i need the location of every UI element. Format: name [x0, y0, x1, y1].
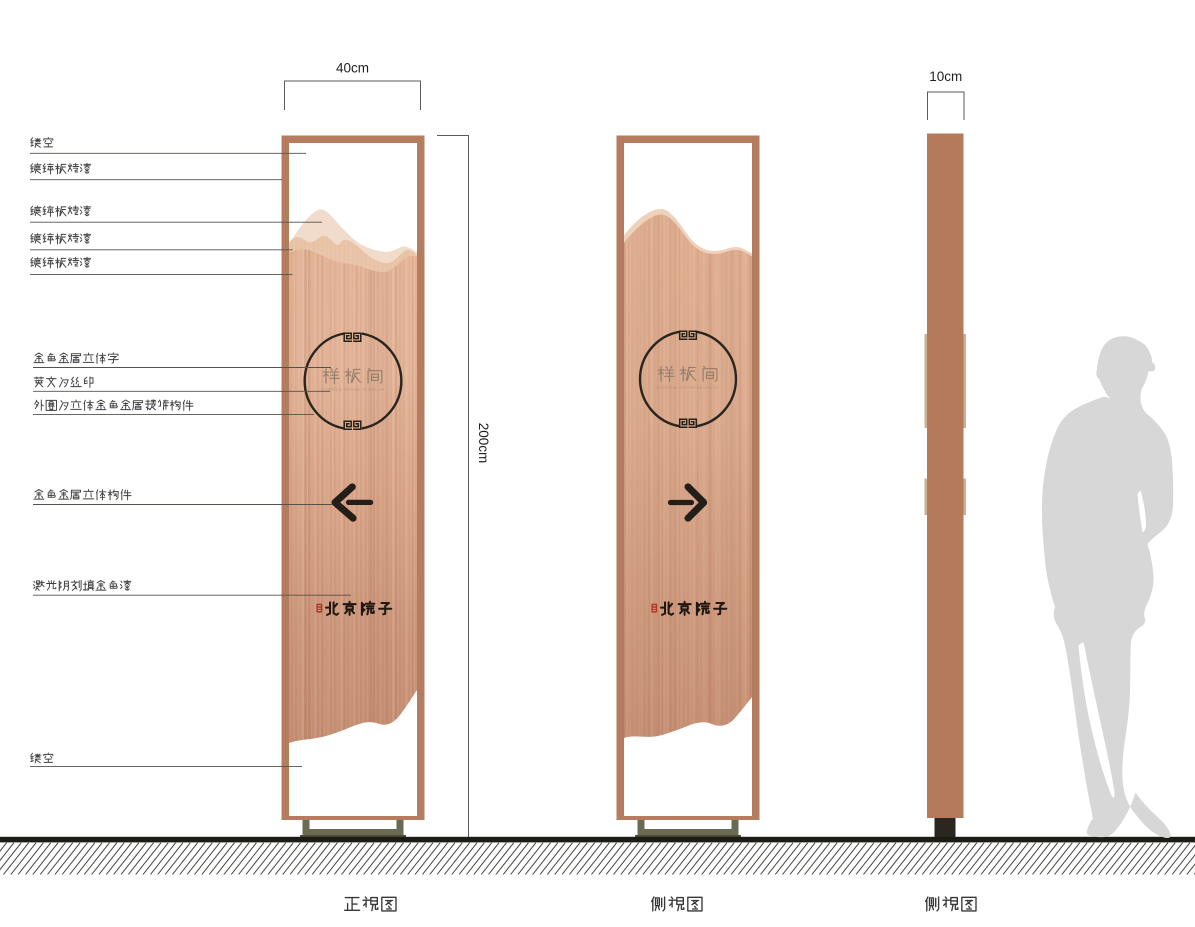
svg-text:10cm: 10cm [929, 69, 962, 84]
svg-text:SAMPLE ROOM DISPLAY: SAMPLE ROOM DISPLAY [656, 385, 720, 390]
svg-text:40cm: 40cm [336, 61, 369, 76]
svg-text:200cm: 200cm [476, 423, 491, 464]
svg-text:SAMPLE ROOM DISPLAY: SAMPLE ROOM DISPLAY [321, 387, 385, 392]
